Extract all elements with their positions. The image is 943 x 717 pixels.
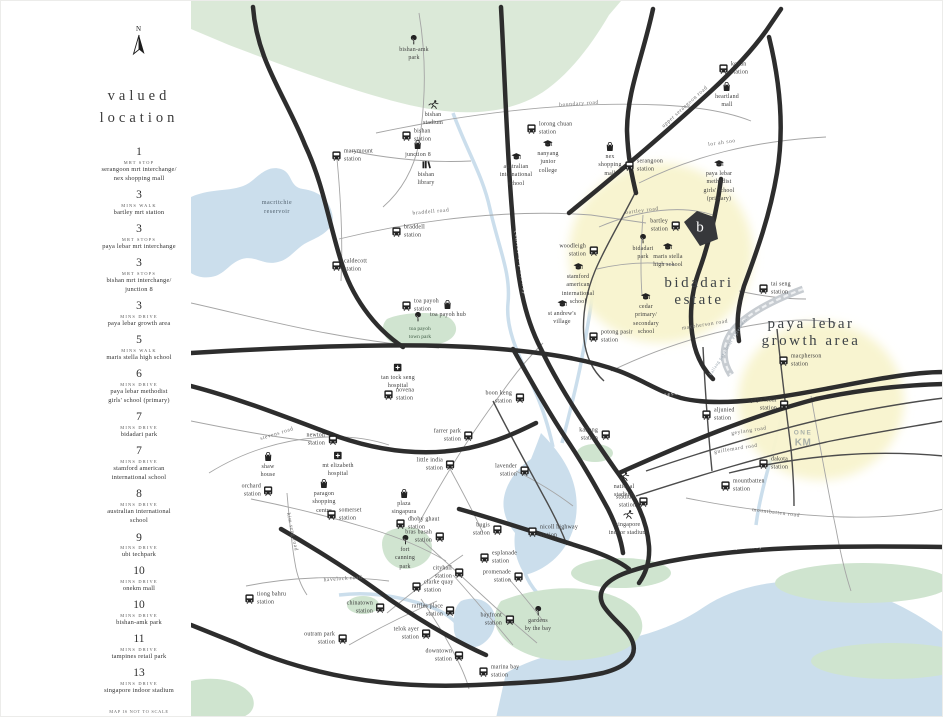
poi-label: orchard station xyxy=(242,483,261,500)
poi-label: boon keng station xyxy=(485,390,512,407)
poi-label: somerset station xyxy=(339,507,362,524)
train-icon xyxy=(638,497,649,508)
poi-label: bidadari park xyxy=(633,245,654,262)
poi-fort-canning-park: fort canning park xyxy=(395,534,415,571)
poi-orchard-station: orchard station xyxy=(242,483,274,500)
road-label-bartley-road: bartley road xyxy=(625,206,659,216)
item-number: 3 xyxy=(81,257,197,270)
poi-bugis-station: bugis station xyxy=(473,522,503,539)
train-icon xyxy=(244,594,255,605)
item-name: paya lebar mrt interchange xyxy=(81,242,197,251)
school-icon xyxy=(663,241,674,252)
train-icon xyxy=(445,460,456,471)
poi-kovan-station: kovan station xyxy=(718,61,748,78)
poi-novena-station: novena station xyxy=(383,387,414,404)
poi-paragon-shopping-centre: paragon shopping centre xyxy=(312,478,335,515)
poi-telok-ayer-station: telok ayer station xyxy=(394,626,432,643)
mall-icon xyxy=(263,451,274,462)
tree-icon xyxy=(638,233,649,244)
poi-stadium-station: stadium station xyxy=(616,494,649,511)
mall-icon xyxy=(412,139,423,150)
poi-label: chinatown station xyxy=(347,600,373,617)
valued-location-item-paya-lebar-methodist: 6mins drivepaya lebar methodist girls' s… xyxy=(81,368,197,405)
item-number: 3 xyxy=(81,300,197,313)
poi-australian-international-school: australian international school xyxy=(500,151,532,188)
valued-location-item-bidadari-park: 7mins drivebidadari park xyxy=(81,411,197,439)
poi-kallang-station: kallang station xyxy=(579,427,611,444)
road-label-mountbatten-road: mountbatten road xyxy=(752,507,801,519)
poi-esplanade-station: esplanade station xyxy=(479,550,517,567)
poi-chinatown-station: chinatown station xyxy=(347,600,386,617)
poi-label: downtown station xyxy=(426,648,452,665)
school-icon xyxy=(573,261,584,272)
poi-label: telok ayer station xyxy=(394,626,419,643)
poi-label: stadium station xyxy=(616,494,636,511)
school-icon xyxy=(556,298,567,309)
poi-label: novena station xyxy=(396,387,414,404)
item-number: 5 xyxy=(81,334,197,347)
train-icon xyxy=(478,667,489,678)
map-disclaimer: map is not to scale drive time is based … xyxy=(81,708,197,717)
runner-icon xyxy=(428,99,439,110)
valued-location-item-paya-lebar-mrt-interchange: 3mrt stopspaya lebar mrt interchange xyxy=(81,223,197,251)
poi-mountbatten-station: mountbatten station xyxy=(720,478,765,495)
item-number: 10 xyxy=(81,599,197,612)
valued-location-item-bishan-amk-park: 10mins drivebishan-amk park xyxy=(81,599,197,627)
poi-serangoon-station: serangoon station xyxy=(624,158,663,175)
poi-label: paya lebar methodist girls' school (prim… xyxy=(704,170,735,203)
item-name: serangoon mrt interchange/ nex shopping … xyxy=(81,165,197,184)
road-label-boundary-road: boundary road xyxy=(559,100,599,109)
poi-label: junction 8 xyxy=(405,151,431,159)
item-name: paya lebar methodist girls' school (prim… xyxy=(81,387,197,406)
item-number: 1 xyxy=(81,146,197,159)
sidebar-title: valued location xyxy=(81,85,197,130)
poi-label: bras basah station xyxy=(405,529,432,546)
poi-bartley-station: bartley station xyxy=(650,218,681,235)
poi-national-stadium: national stadium xyxy=(614,471,635,500)
b-development-logo: b xyxy=(696,220,704,237)
poi-label: heartland mall xyxy=(715,93,739,110)
poi-label: tai seng station xyxy=(771,281,791,298)
poi-label: bayfront station xyxy=(480,612,502,629)
train-icon xyxy=(514,393,525,404)
road-label-upper-serangoon-road: upper serangoon road xyxy=(661,85,709,129)
item-number: 7 xyxy=(81,411,197,424)
sidebar-panel: N valued location 1mrt stopserangoon mrt… xyxy=(81,25,197,717)
train-icon xyxy=(519,466,530,477)
poi-bishan-station: bishan station xyxy=(401,128,431,145)
poi-label: st andrew's village xyxy=(548,310,576,327)
road-label-braddell-road: braddell road xyxy=(412,207,449,216)
poi-label: nicoll highway station xyxy=(540,524,578,541)
mall-icon xyxy=(398,488,409,499)
poi-paya-lebar-methodist-girls-school-primary: paya lebar methodist girls' school (prim… xyxy=(704,158,735,203)
poi-label: shaw house xyxy=(261,463,276,480)
road-label-geylang-road: geylang road xyxy=(731,425,767,437)
poi-label: toa payoh station xyxy=(414,298,439,315)
poi-somerset-station: somerset station xyxy=(326,507,362,524)
poi-label: mt elizabeth hospital xyxy=(322,462,353,479)
poi-nanyang-junior-college: nanyang junior college xyxy=(537,138,558,175)
poi-maris-stella-high-school: maris stella high school xyxy=(653,241,683,270)
poi-tan-tock-seng-hospital: tan tock seng hospital xyxy=(381,362,415,391)
tree-icon xyxy=(532,605,543,616)
poi-label: nex shopping mall xyxy=(598,153,621,178)
train-icon xyxy=(588,246,599,257)
poi-label: farrer park station xyxy=(434,428,461,445)
school-icon xyxy=(714,158,725,169)
train-icon xyxy=(331,151,342,162)
onekm-logo-line1: ONE xyxy=(794,430,813,437)
poi-label: potong pasir station xyxy=(601,329,633,346)
poi-aljunied-station: aljunied station xyxy=(701,407,735,424)
train-icon xyxy=(375,603,386,614)
train-icon xyxy=(779,400,790,411)
poi-cedar-primary-secondary-school: cedar primary/ secondary school xyxy=(633,291,659,336)
train-icon xyxy=(526,124,537,135)
poi-label: newton station xyxy=(306,432,325,449)
poi-nicoll-highway-station: nicoll highway station xyxy=(527,524,578,541)
item-number: 13 xyxy=(81,667,197,680)
poi-label: toa payoh hub xyxy=(430,311,466,319)
train-icon xyxy=(454,651,465,662)
tree-icon xyxy=(413,311,424,322)
poi-toa-payoh-station: toa payoh station xyxy=(401,298,439,315)
train-icon xyxy=(391,227,402,238)
poi-label: paya lebar station xyxy=(751,397,777,414)
road-label-macpherson-road: macpherson road xyxy=(681,318,728,331)
poi-label: aljunied station xyxy=(714,407,735,424)
poi-lorong-chuan-station: lorong chuan station xyxy=(526,121,572,138)
poi-clarke-quay-station: clarke quay station xyxy=(411,579,454,596)
train-icon xyxy=(331,261,342,272)
poi-toa-payoh-hub: toa payoh hub xyxy=(430,299,466,319)
poi-marina-bay-station: marina bay station xyxy=(478,664,519,681)
train-icon xyxy=(758,459,769,470)
poi-downtown-station: downtown station xyxy=(426,648,465,665)
map-label-layer: bishan-amk parkbishan stadiumbishan stat… xyxy=(191,1,943,717)
item-name: singapore indoor stadium xyxy=(81,686,197,695)
poi-label: marina bay station xyxy=(491,664,519,681)
valued-location-item-maris-stella-high-school: 5mins walkmaris stella high school xyxy=(81,334,197,362)
valued-location-item-tampines-retail-park: 11mins drivetampines retail park xyxy=(81,633,197,661)
school-icon xyxy=(511,151,522,162)
school-icon xyxy=(542,138,553,149)
valued-location-item-singapore-indoor-stadium: 13mins drivesingapore indoor stadium xyxy=(81,667,197,695)
poi-label: cedar primary/ secondary school xyxy=(633,303,659,336)
poi-label: bugis station xyxy=(473,522,490,539)
poi-label: clarke quay station xyxy=(424,579,454,596)
road-label-central-expressway: central expressway xyxy=(512,230,527,296)
poi-label: nanyang junior college xyxy=(537,150,558,175)
poi-tai-seng-station: tai seng station xyxy=(758,281,791,298)
poi-marymount-station: marymount station xyxy=(331,148,373,165)
school-icon xyxy=(641,291,652,302)
poi-label: maris stella high school xyxy=(653,253,683,270)
item-name: onekm mall xyxy=(81,584,197,593)
valued-location-item-bartley-mrt-station: 3mins walkbartley mrt station xyxy=(81,189,197,217)
hospital-icon xyxy=(332,450,343,461)
train-icon xyxy=(395,519,406,530)
map-canvas: bishan-amk parkbishan stadiumbishan stat… xyxy=(191,1,943,717)
train-icon xyxy=(445,606,456,617)
poi-tiong-bahru-station: tiong bahru station xyxy=(244,591,286,608)
poi-raffles-place-station: raffles place station xyxy=(412,603,456,620)
poi-label: mountbatten station xyxy=(733,478,765,495)
train-icon xyxy=(778,356,789,367)
item-name: bidadari park xyxy=(81,430,197,439)
poi-gardens-by-the-bay: gardens by the bay xyxy=(525,605,552,634)
poi-paya-lebar-station: paya lebar station xyxy=(751,397,790,414)
train-icon xyxy=(411,582,422,593)
brochure-location-map: N valued location 1mrt stopserangoon mrt… xyxy=(0,0,943,717)
poi-farrer-park-station: farrer park station xyxy=(434,428,474,445)
poi-label: kallang station xyxy=(579,427,598,444)
item-number: 11 xyxy=(81,633,197,646)
runner-icon xyxy=(618,471,629,482)
onekm-mall-logo: ONEKM xyxy=(794,430,813,448)
tree-icon xyxy=(400,534,411,545)
poi-label: outram park station xyxy=(304,631,335,648)
item-name: bishan-amk park xyxy=(81,618,197,627)
poi-bras-basah-station: bras basah station xyxy=(405,529,445,546)
poi-label: dhoby ghaut station xyxy=(408,516,440,533)
poi-st-andrew-s-village: st andrew's village xyxy=(548,298,576,327)
item-number: 10 xyxy=(81,565,197,578)
poi-label: raffles place station xyxy=(412,603,443,620)
train-icon xyxy=(701,410,712,421)
item-name: bartley mrt station xyxy=(81,208,197,217)
train-icon xyxy=(463,431,474,442)
park-label-toa-payoh-town-park: toa payoh town park xyxy=(409,326,431,342)
poi-label: paragon shopping centre xyxy=(312,490,335,515)
mall-icon xyxy=(442,299,453,310)
poi-mt-elizabeth-hospital: mt elizabeth hospital xyxy=(322,450,353,479)
compass-north-label: N xyxy=(81,25,197,33)
poi-label: bishan library xyxy=(417,171,434,188)
train-icon xyxy=(718,64,729,75)
library-icon xyxy=(420,159,431,170)
valued-location-item-australian-international: 8mins driveaustralian international scho… xyxy=(81,488,197,525)
poi-dhoby-ghaut-station: dhoby ghaut station xyxy=(395,516,440,533)
poi-label: stamford american international school xyxy=(562,273,594,306)
water-label-macritchie-reservoir: macritchie reservoir xyxy=(262,199,292,217)
area-label-paya-lebar-growth-area: paya lebar growth area xyxy=(762,316,861,351)
poi-label: gardens by the bay xyxy=(525,617,552,634)
item-number: 3 xyxy=(81,189,197,202)
poi-label: promenade station xyxy=(483,569,511,586)
item-name: paya lebar growth area xyxy=(81,319,197,328)
poi-label: dakota station xyxy=(771,456,788,473)
poi-label: braddell station xyxy=(404,224,425,241)
train-icon xyxy=(337,634,348,645)
poi-bishan-library: bishan library xyxy=(417,159,434,188)
poi-heartland-mall: heartland mall xyxy=(715,81,739,110)
item-number: 7 xyxy=(81,445,197,458)
poi-bayfront-station: bayfront station xyxy=(480,612,515,629)
train-icon xyxy=(383,390,394,401)
poi-label: bishan stadium xyxy=(423,111,443,128)
poi-braddell-station: braddell station xyxy=(391,224,425,241)
poi-label: bishan-amk park xyxy=(399,46,428,63)
hospital-icon xyxy=(393,362,404,373)
train-icon xyxy=(479,553,490,564)
poi-label: fort canning park xyxy=(395,546,415,571)
poi-outram-park-station: outram park station xyxy=(304,631,348,648)
train-icon xyxy=(720,481,731,492)
item-name: australian international school xyxy=(81,507,197,526)
poi-label: plaza singapura xyxy=(392,500,417,517)
road-label-east-coast-parkway: east coast parkway xyxy=(698,544,763,552)
valued-location-item-ubi-techpark: 9mins driveubi techpark xyxy=(81,532,197,560)
runner-icon xyxy=(623,509,634,520)
poi-dakota-station: dakota station xyxy=(758,456,788,473)
poi-label: australian international school xyxy=(500,163,532,188)
poi-label: singapore indoor stadium xyxy=(609,521,647,538)
poi-bishan-stadium: bishan stadium xyxy=(423,99,443,128)
poi-bidadari-park: bidadari park xyxy=(633,233,654,262)
valued-location-item-stamford-american: 7mins drivestamford american internation… xyxy=(81,445,197,482)
poi-label: marymount station xyxy=(344,148,373,165)
valued-location-item-paya-lebar-growth-area: 3mins drivepaya lebar growth area xyxy=(81,300,197,328)
poi-label: tan tock seng hospital xyxy=(381,374,415,391)
poi-label: caldecott station xyxy=(344,258,367,275)
sidebar: N valued location 1mrt stopserangoon mrt… xyxy=(1,1,191,717)
poi-macpherson-station: macpherson station xyxy=(778,353,821,370)
valued-location-item-bishan-mrt-interchange: 3mrt stopsbishan mrt interchange/ juncti… xyxy=(81,257,197,294)
poi-potong-pasir-station: potong pasir station xyxy=(588,329,633,346)
poi-label: national stadium xyxy=(614,483,635,500)
mall-icon xyxy=(604,141,615,152)
poi-junction-8: junction 8 xyxy=(405,139,431,159)
train-icon xyxy=(527,527,538,538)
train-icon xyxy=(492,525,503,536)
poi-label: tiong bahru station xyxy=(257,591,286,608)
mall-icon xyxy=(318,478,329,489)
train-icon xyxy=(454,568,465,579)
item-number: 8 xyxy=(81,488,197,501)
train-icon xyxy=(421,629,432,640)
poi-label: bartley station xyxy=(650,218,668,235)
item-name: bishan mrt interchange/ junction 8 xyxy=(81,276,197,295)
poi-label: lorong chuan station xyxy=(539,121,572,138)
road-label-lor-ah-soo: lor ah soo xyxy=(708,138,736,148)
train-icon xyxy=(401,131,412,142)
road-label-havelock-road: havelock road xyxy=(323,575,362,584)
item-number: 9 xyxy=(81,532,197,545)
item-name: ubi techpark xyxy=(81,550,197,559)
poi-promenade-station: promenade station xyxy=(483,569,524,586)
train-icon xyxy=(504,615,515,626)
poi-label: bishan station xyxy=(414,128,431,145)
poi-bishan-amk-park: bishan-amk park xyxy=(399,34,428,63)
train-icon xyxy=(434,532,445,543)
item-name: tampines retail park xyxy=(81,652,197,661)
poi-singapore-indoor-stadium: singapore indoor stadium xyxy=(609,509,647,538)
poi-label: little india station xyxy=(417,457,443,474)
poi-label: woodleigh station xyxy=(559,243,586,260)
area-label-bidadari-estate: bidadari estate xyxy=(664,275,733,310)
item-name: maris stella high school xyxy=(81,353,197,362)
road-label-pan-island-expressway: pan island expressway xyxy=(615,389,692,406)
train-icon xyxy=(758,284,769,295)
poi-little-india-station: little india station xyxy=(417,457,456,474)
poi-label: cityhall station xyxy=(433,565,452,582)
train-icon xyxy=(263,486,274,497)
item-name: stamford american international school xyxy=(81,464,197,483)
road-label-kim-seng-road: kim seng road xyxy=(285,512,299,551)
train-icon xyxy=(401,301,412,312)
road-label-guillemard-road: guillemard road xyxy=(714,443,758,456)
poi-shaw-house: shaw house xyxy=(261,451,276,480)
poi-woodleigh-station: woodleigh station xyxy=(559,243,599,260)
tree-icon xyxy=(408,34,419,45)
poi-label: lavender station xyxy=(495,463,517,480)
train-icon xyxy=(624,161,635,172)
poi-stamford-american-international-school: stamford american international school xyxy=(562,261,594,306)
poi-boon-keng-station: boon keng station xyxy=(485,390,525,407)
train-icon xyxy=(327,435,338,446)
train-icon xyxy=(670,221,681,232)
poi-label: macpherson station xyxy=(791,353,821,370)
poi-caldecott-station: caldecott station xyxy=(331,258,367,275)
poi-label: serangoon station xyxy=(637,158,663,175)
train-icon xyxy=(326,510,337,521)
poi-lavender-station: lavender station xyxy=(495,463,530,480)
mall-icon xyxy=(722,81,733,92)
poi-newton-station: newton station xyxy=(306,432,338,449)
item-number: 6 xyxy=(81,368,197,381)
poi-plaza-singapura: plaza singapura xyxy=(392,488,417,517)
train-icon xyxy=(513,572,524,583)
valued-location-item-serangoon-mrt-interchange: 1mrt stopserangoon mrt interchange/ nex … xyxy=(81,146,197,183)
poi-cityhall-station: cityhall station xyxy=(433,565,465,582)
poi-label: kovan station xyxy=(731,61,748,78)
item-number: 3 xyxy=(81,223,197,236)
valued-location-item-onekm-mall: 10mins driveonekm mall xyxy=(81,565,197,593)
poi-nex-shopping-mall: nex shopping mall xyxy=(598,141,621,178)
valued-location-list: 1mrt stopserangoon mrt interchange/ nex … xyxy=(81,146,197,695)
train-icon xyxy=(600,430,611,441)
north-arrow-icon xyxy=(131,34,147,56)
poi-tree xyxy=(413,311,424,322)
road-label-stevens-road: stevens road xyxy=(260,426,295,442)
train-icon xyxy=(588,332,599,343)
onekm-logo-line2: KM xyxy=(794,438,813,448)
poi-label: esplanade station xyxy=(492,550,517,567)
